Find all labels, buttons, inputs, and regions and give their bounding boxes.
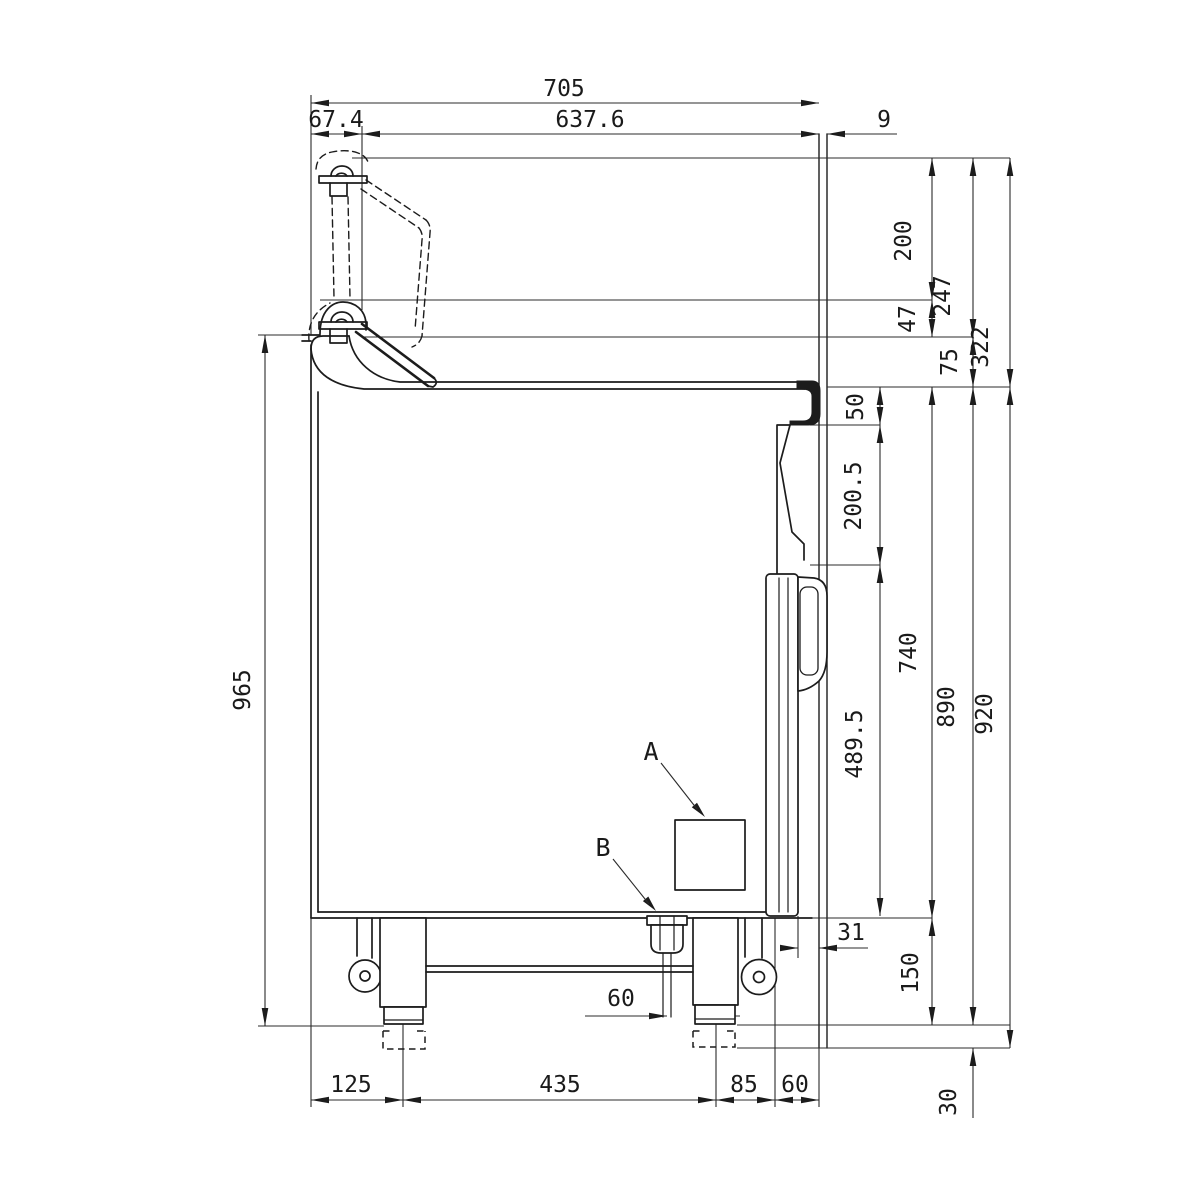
dim-965: 965 (230, 669, 256, 711)
appliance-outline (302, 166, 827, 1049)
dim-75: 75 (937, 348, 963, 376)
dim-31: 31 (837, 920, 865, 946)
rear-upper-profile (780, 425, 804, 560)
technical-drawing-page: 705 67.4 637.6 9 200 247 322 47 75 50 20… (0, 0, 1200, 1200)
dim-150: 150 (898, 952, 924, 994)
dim-front-depth: 67.4 (308, 107, 363, 133)
dimension-labels: 705 67.4 637.6 9 200 247 322 47 75 50 20… (230, 76, 998, 1116)
dim-main-depth: 637.6 (555, 107, 624, 133)
dim-125: 125 (330, 1072, 372, 1098)
caster-left (349, 918, 381, 992)
leg-right (693, 918, 738, 1024)
dim-435: 435 (539, 1072, 581, 1098)
worktop-rear-lip (790, 381, 820, 425)
foot-extension-left-dashed (383, 1031, 425, 1049)
dim-rear-gap: 9 (877, 107, 891, 133)
dim-920: 920 (972, 693, 998, 735)
dim-200-5: 200.5 (841, 461, 867, 530)
dim-30: 30 (936, 1088, 962, 1116)
dim-50: 50 (843, 393, 869, 421)
base-cross-rails (426, 966, 693, 972)
dim-47: 47 (895, 305, 921, 333)
dim-489-5: 489.5 (842, 709, 868, 778)
appliance-side-view-drawing: 705 67.4 637.6 9 200 247 322 47 75 50 20… (0, 0, 1200, 1200)
component-a-box (675, 820, 745, 890)
dim-60-drain: 60 (607, 986, 635, 1012)
dim-60: 60 (781, 1072, 809, 1098)
side-door (766, 574, 798, 916)
dim-740: 740 (896, 632, 922, 674)
caster-right (742, 918, 777, 995)
dim-890: 890 (934, 686, 960, 728)
leg-left (380, 918, 426, 1024)
door-handle (798, 577, 827, 691)
dim-322: 322 (968, 326, 994, 368)
lid-closed (356, 324, 436, 387)
lid-open-dashed-outline (309, 151, 430, 347)
callout-a-label: A (643, 737, 658, 766)
callout-b-label: B (595, 833, 610, 862)
foot-extension-right-dashed (693, 1031, 735, 1047)
lid-hinge-open (319, 166, 367, 196)
dim-247: 247 (930, 275, 956, 317)
dim-200: 200 (891, 220, 917, 262)
dim-overall-depth: 705 (543, 76, 585, 102)
dim-85: 85 (730, 1072, 758, 1098)
